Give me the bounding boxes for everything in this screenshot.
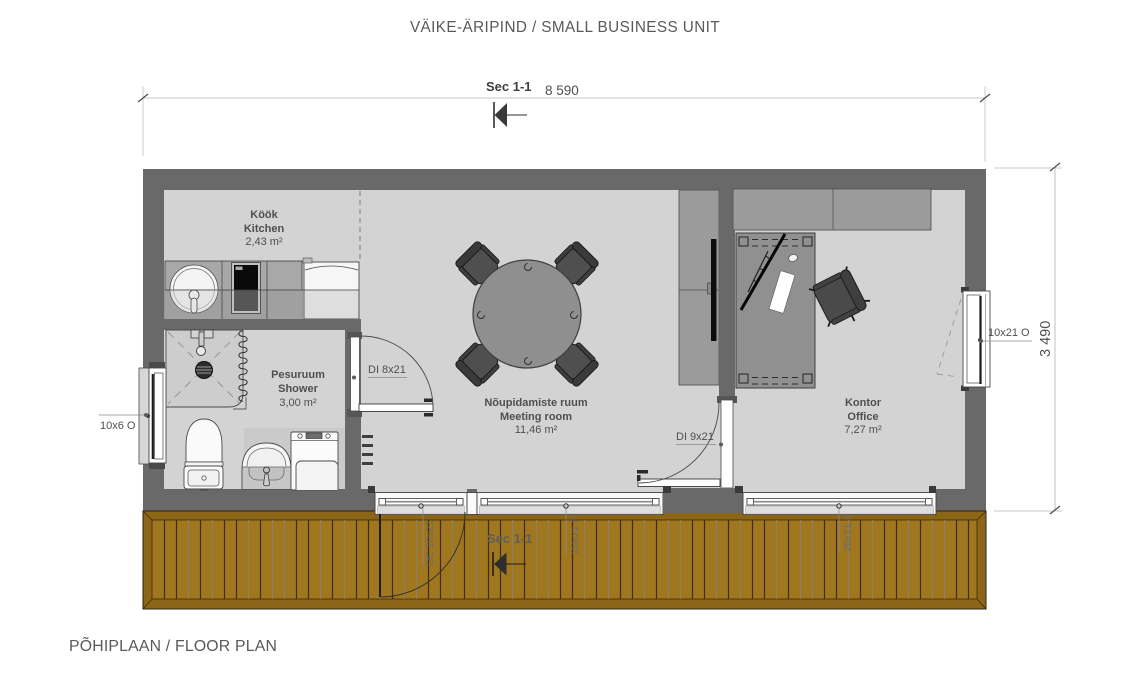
svg-text:PÕHIPLAAN / FLOOR PLAN: PÕHIPLAAN / FLOOR PLAN xyxy=(69,635,277,655)
svg-text:20x21 F: 20x21 F xyxy=(569,516,581,554)
svg-text:20x21 F: 20x21 F xyxy=(842,514,854,552)
svg-text:Sec 1-1: Sec 1-1 xyxy=(486,79,532,94)
svg-text:Shower: Shower xyxy=(278,383,318,395)
svg-text:11,46 m²: 11,46 m² xyxy=(515,424,558,436)
svg-text:Meeting room: Meeting room xyxy=(500,411,572,423)
svg-text:Pesuruum: Pesuruum xyxy=(271,369,325,381)
svg-text:3,00 m²: 3,00 m² xyxy=(279,397,317,409)
svg-text:DI 9x21: DI 9x21 xyxy=(676,431,714,443)
svg-text:2,43 m²: 2,43 m² xyxy=(245,236,283,248)
svg-text:VÄIKE-ÄRIPIND / SMALL BUSINESS: VÄIKE-ÄRIPIND / SMALL BUSINESS UNIT xyxy=(410,19,720,36)
svg-text:Sec 1-1: Sec 1-1 xyxy=(487,531,533,546)
svg-text:10x21 O: 10x21 O xyxy=(988,327,1030,339)
svg-text:DE 10x21: DE 10x21 xyxy=(424,520,436,566)
svg-text:Office: Office xyxy=(847,411,878,423)
svg-text:8 590: 8 590 xyxy=(545,83,579,98)
svg-text:DI 8x21: DI 8x21 xyxy=(368,364,406,376)
svg-text:7,27 m²: 7,27 m² xyxy=(844,424,882,436)
svg-text:10x6 O: 10x6 O xyxy=(100,420,136,432)
svg-text:Köök: Köök xyxy=(250,209,278,221)
svg-text:Nõupidamiste ruum: Nõupidamiste ruum xyxy=(484,397,588,409)
svg-text:Kontor: Kontor xyxy=(845,397,882,409)
svg-text:3 490: 3 490 xyxy=(1038,321,1054,357)
svg-text:Kitchen: Kitchen xyxy=(244,223,285,235)
